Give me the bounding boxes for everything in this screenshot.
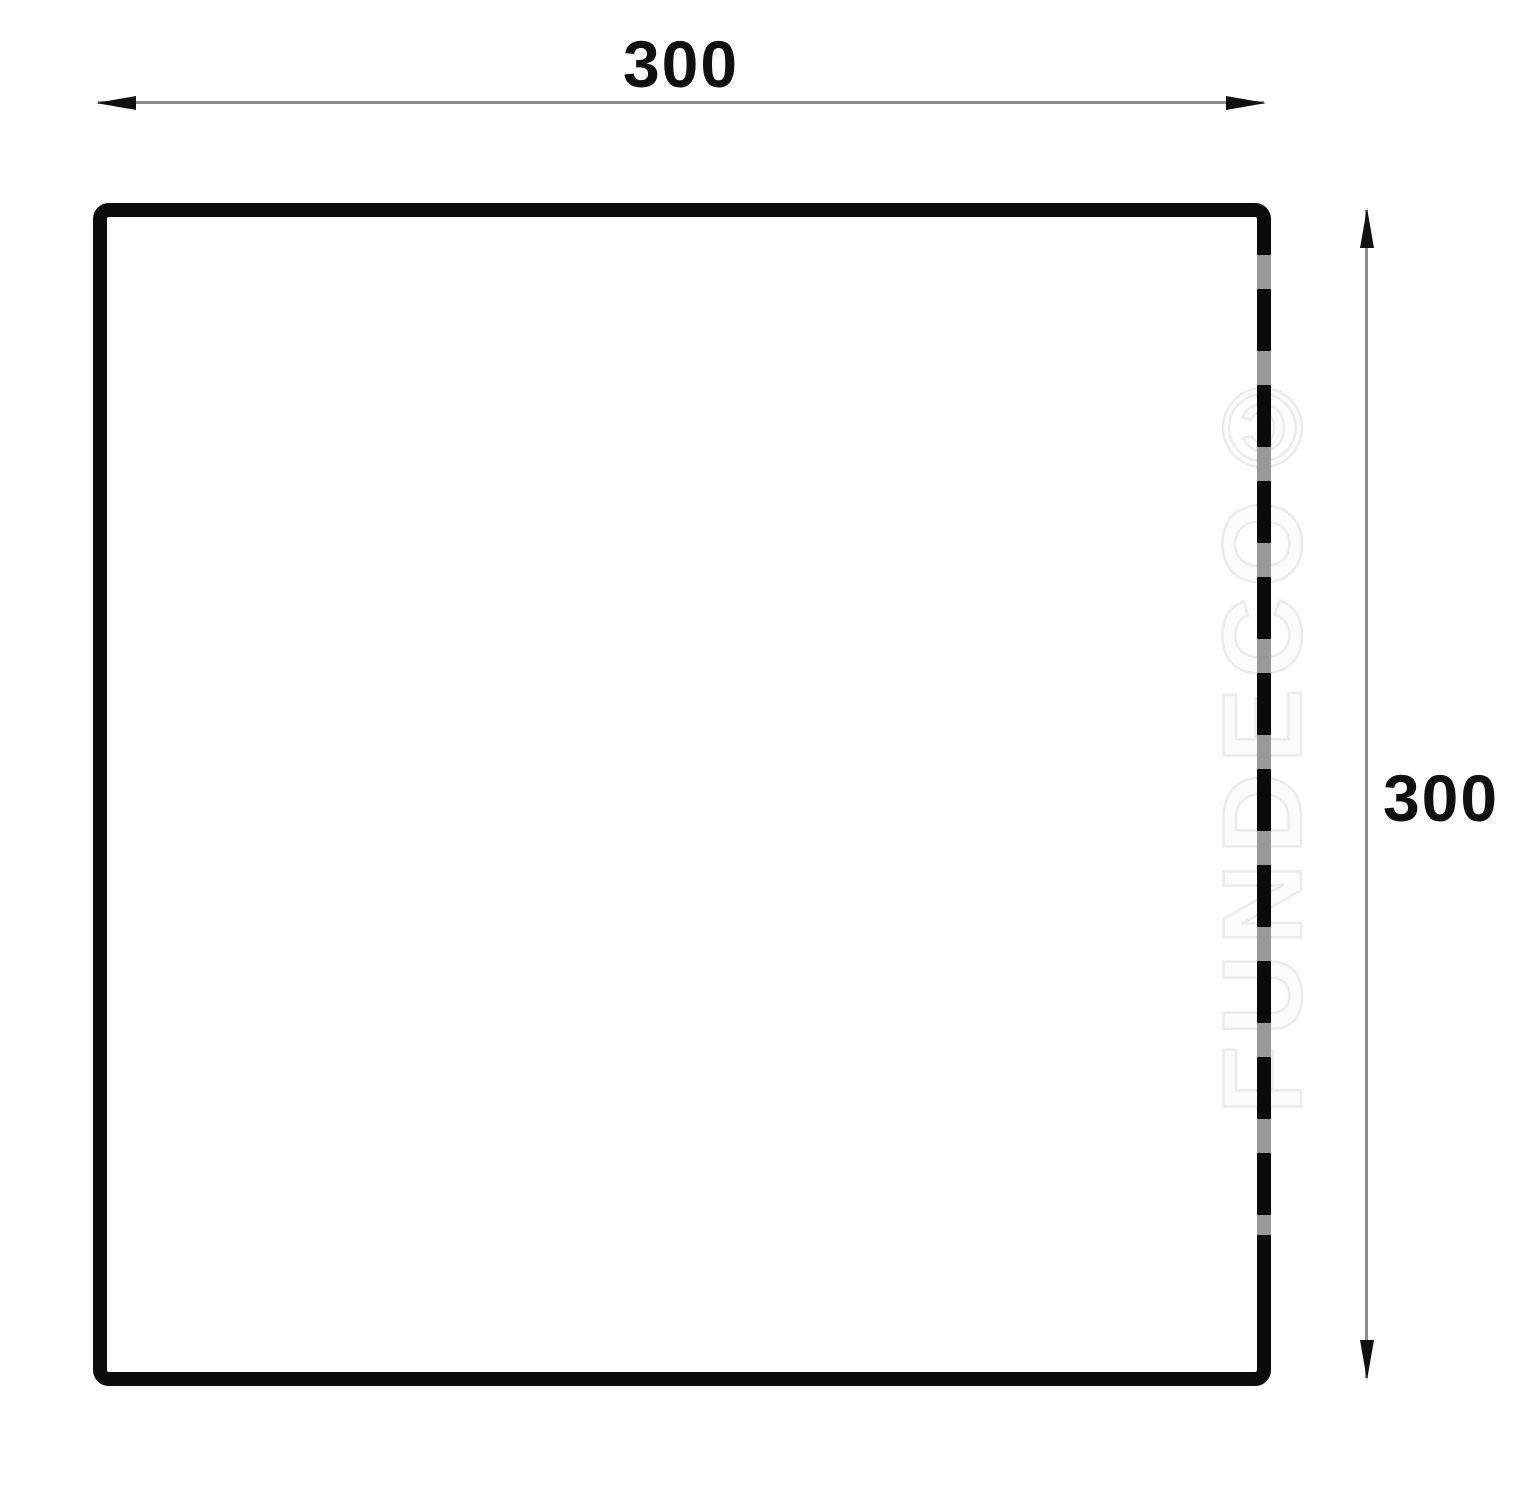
square-outline (93, 203, 1271, 1386)
arrowhead-right-icon (1226, 96, 1266, 110)
right-dimension-label: 300 (1374, 760, 1508, 836)
arrowhead-left-icon (96, 96, 136, 110)
top-dimension-line (98, 101, 1264, 104)
arrowhead-up-icon (1360, 208, 1374, 248)
arrowhead-down-icon (1360, 1340, 1374, 1380)
right-dimension-line (1365, 210, 1368, 1378)
technical-drawing-canvas: 300 FUNDECO© 300 (0, 0, 1536, 1498)
top-dimension-label: 300 (98, 26, 1264, 102)
